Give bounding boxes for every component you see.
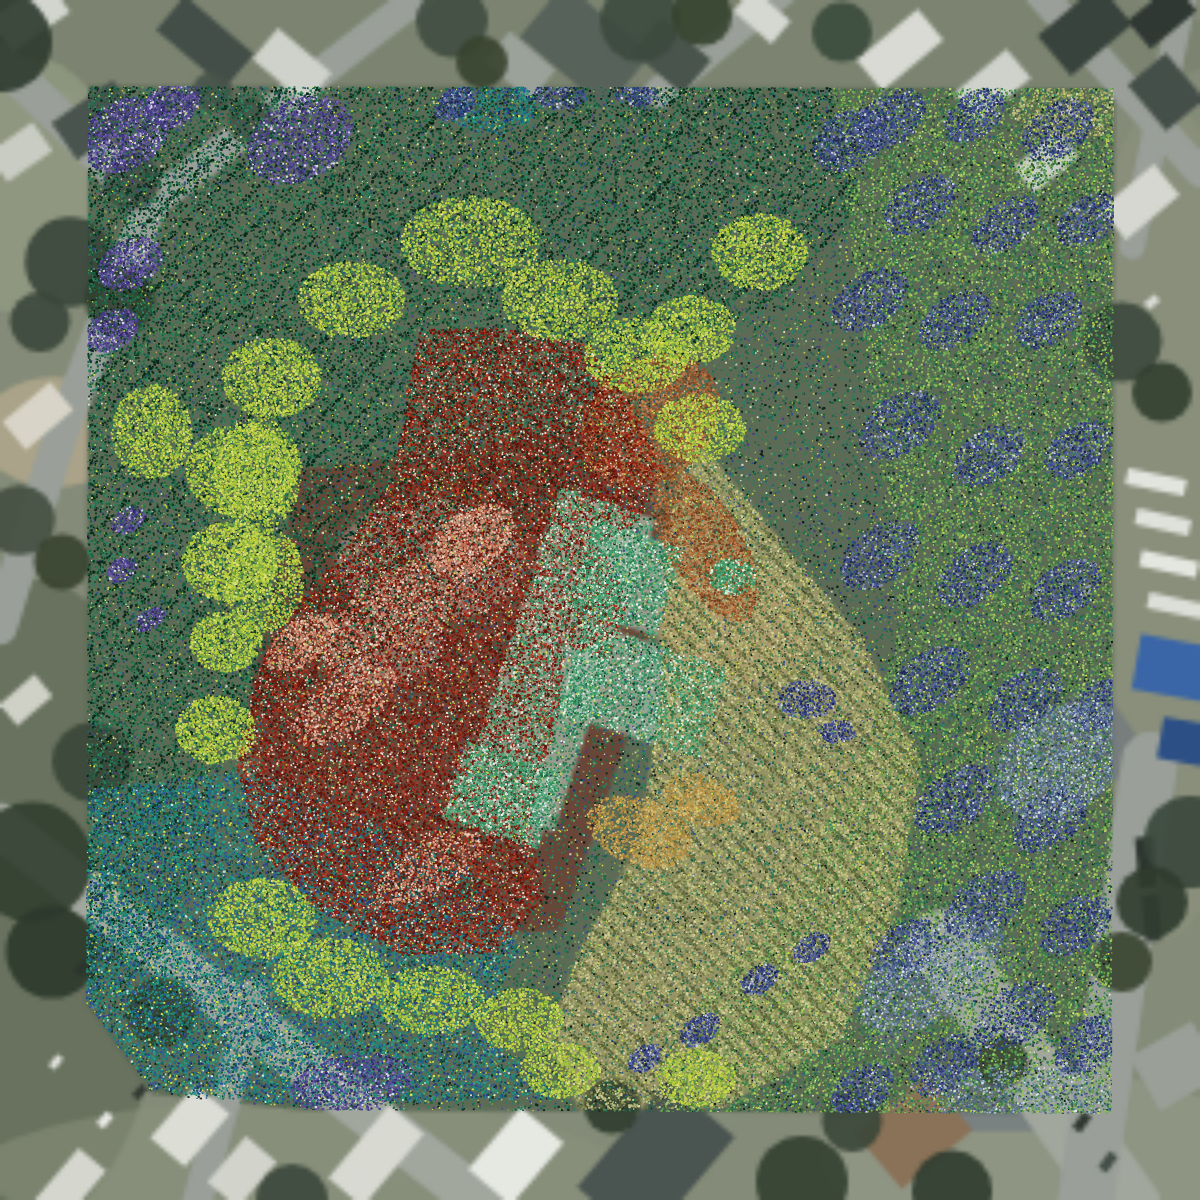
lidar-point-cloud-canvas	[0, 0, 1200, 1200]
map-viewport[interactable]	[0, 0, 1200, 1200]
